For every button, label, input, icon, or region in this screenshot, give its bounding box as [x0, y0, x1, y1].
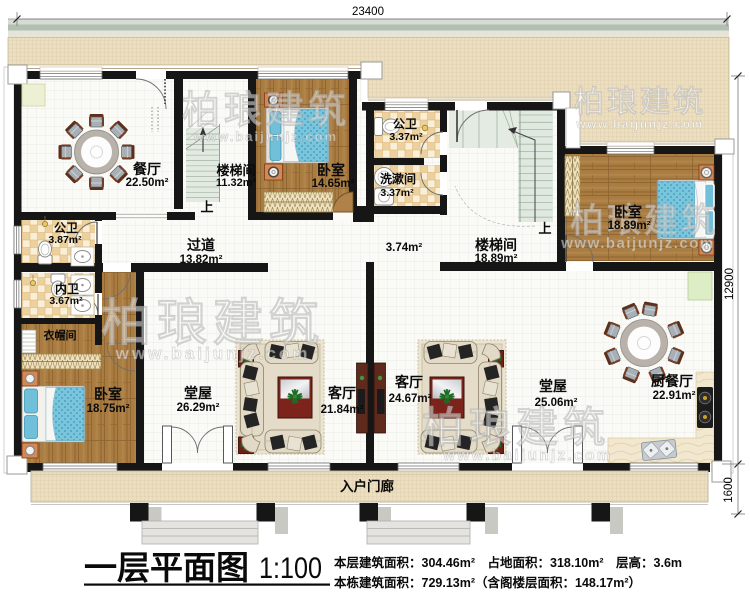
- svg-text:客厅: 客厅: [327, 385, 356, 401]
- svg-text:客厅: 客厅: [394, 374, 423, 390]
- svg-text:14.65m²: 14.65m²: [312, 178, 355, 190]
- svg-text:公卫: 公卫: [54, 221, 78, 235]
- svg-text:18.75m²: 18.75m²: [87, 403, 130, 415]
- svg-text:餐厅: 餐厅: [132, 161, 161, 177]
- svg-text:22.91m²: 22.91m²: [653, 390, 696, 402]
- svg-text:本栋建筑面积：729.13m²（含阁楼层面积：148.17m: 本栋建筑面积：729.13m²（含阁楼层面积：148.17m²）: [334, 575, 641, 590]
- svg-text:www.baijunjz.com: www.baijunjz.com: [560, 235, 714, 252]
- svg-text:本层建筑面积：304.46m² 占地面积：318.10m²: 本层建筑面积：304.46m² 占地面积：318.10m² 层高：3.6m: [334, 555, 682, 570]
- svg-text:公卫: 公卫: [393, 117, 417, 131]
- svg-text:18.89m²: 18.89m²: [475, 253, 518, 265]
- svg-text:18.89m²: 18.89m²: [608, 220, 651, 232]
- svg-text:12900: 12900: [724, 268, 736, 300]
- svg-text:25.06m²: 25.06m²: [535, 397, 578, 409]
- svg-text:www.baijunjz.com: www.baijunjz.com: [193, 129, 338, 144]
- svg-text:卧室: 卧室: [614, 204, 642, 220]
- svg-text:一层平面图: 一层平面图: [84, 549, 249, 586]
- svg-text:13.82m²: 13.82m²: [180, 254, 223, 266]
- svg-text:堂屋: 堂屋: [184, 385, 212, 401]
- svg-text:www.baijunjz.com: www.baijunjz.com: [575, 117, 704, 131]
- svg-text:入户门廊: 入户门廊: [340, 478, 394, 494]
- svg-text:www.baijunjz.com: www.baijunjz.com: [442, 447, 612, 464]
- svg-text:柏琅建筑: 柏琅建筑: [101, 295, 325, 351]
- svg-text:洗漱间: 洗漱间: [380, 171, 416, 186]
- svg-text:上: 上: [538, 221, 551, 236]
- svg-text:衣帽间: 衣帽间: [44, 328, 77, 342]
- svg-text:3.37m²: 3.37m²: [380, 187, 414, 199]
- svg-text:3.67m²: 3.67m²: [49, 295, 83, 307]
- svg-text:柏琅建筑: 柏琅建筑: [182, 90, 350, 132]
- svg-text:过道: 过道: [187, 237, 215, 253]
- svg-text:1:100: 1:100: [259, 552, 322, 585]
- svg-text:卧室: 卧室: [94, 386, 122, 402]
- svg-text:卧室: 卧室: [317, 162, 345, 178]
- svg-text:柏琅建筑: 柏琅建筑: [574, 85, 706, 119]
- svg-text:楼梯间: 楼梯间: [475, 237, 517, 253]
- svg-text:3.37m²: 3.37m²: [389, 131, 423, 143]
- svg-text:23400: 23400: [352, 6, 384, 18]
- svg-text:堂屋: 堂屋: [539, 378, 567, 394]
- svg-text:内卫: 内卫: [55, 281, 79, 296]
- svg-text:11.32m²: 11.32m²: [216, 177, 257, 189]
- svg-text:22.50m²: 22.50m²: [126, 177, 169, 189]
- svg-text:26.29m²: 26.29m²: [177, 402, 220, 414]
- svg-text:柏琅建筑: 柏琅建筑: [422, 404, 610, 451]
- svg-text:3.74m²: 3.74m²: [386, 242, 423, 254]
- svg-text:1600: 1600: [723, 477, 735, 503]
- svg-text:厨餐厅: 厨餐厅: [651, 373, 693, 389]
- svg-text:24.67m²: 24.67m²: [389, 393, 432, 405]
- svg-text:www.baijunjz.com: www.baijunjz.com: [115, 344, 311, 363]
- svg-text:21.84m²: 21.84m²: [321, 404, 364, 416]
- svg-text:上: 上: [200, 200, 213, 215]
- svg-text:楼梯间: 楼梯间: [216, 163, 255, 178]
- svg-text:3.87m²: 3.87m²: [48, 234, 82, 246]
